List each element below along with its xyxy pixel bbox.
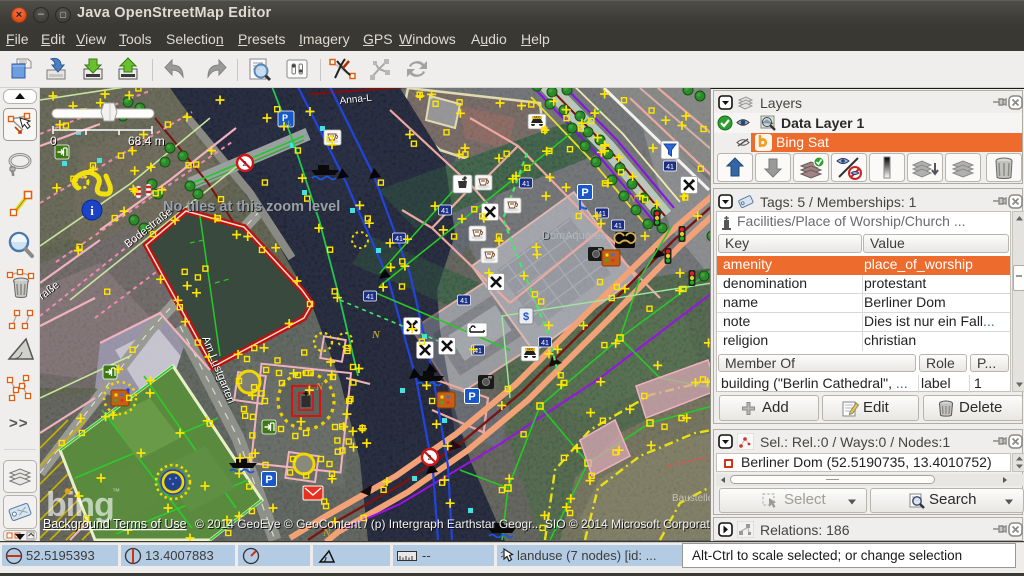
svg-text:N: N <box>315 382 324 393</box>
svg-text:N: N <box>371 329 381 341</box>
svg-text:DomAquaree: DomAquaree <box>542 230 607 242</box>
svg-text:0: 0 <box>50 134 57 148</box>
svg-text:TAXI: TAXI <box>534 116 541 120</box>
svg-text:Background Terms of Use: Background Terms of Use <box>43 517 187 531</box>
svg-text:© 2014 GeoEye © GeoContent / (: © 2014 GeoEye © GeoContent / (p) Intergr… <box>195 517 712 531</box>
svg-text:68.4 m: 68.4 m <box>128 134 165 148</box>
svg-text:TAXI: TAXI <box>527 348 534 352</box>
svg-text:™: ™ <box>112 487 120 496</box>
svg-text:N: N <box>627 193 637 205</box>
svg-text:$: $ <box>523 311 529 323</box>
svg-text:No tiles at this zoom level: No tiles at this zoom level <box>163 199 340 215</box>
svg-text:i: i <box>90 203 94 218</box>
svg-text:Baustelle: Baustelle <box>672 493 712 504</box>
